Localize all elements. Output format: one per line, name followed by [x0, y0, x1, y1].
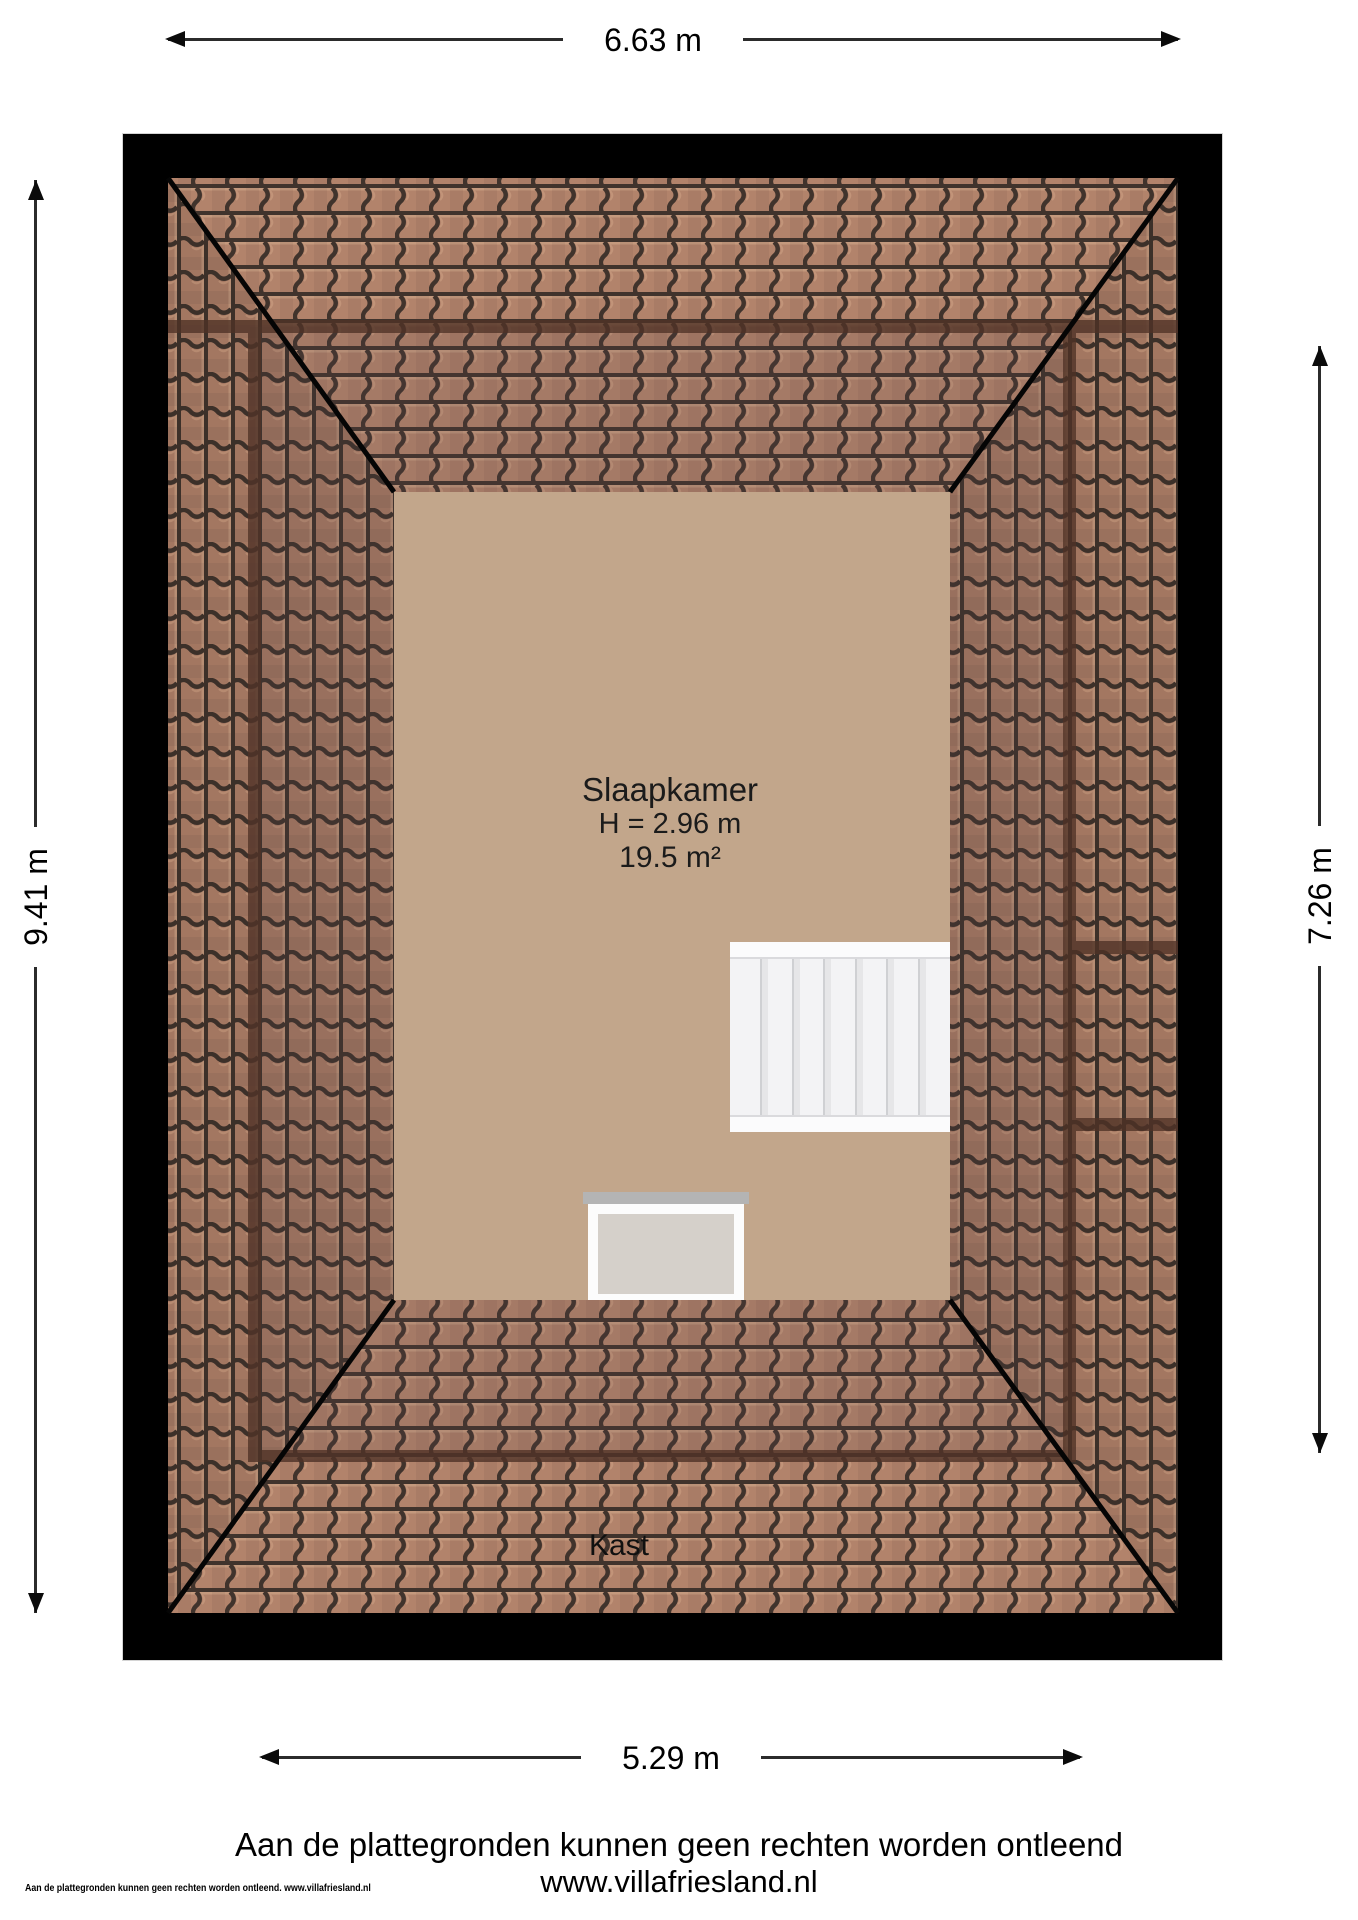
arrowhead-left-icon [259, 1749, 279, 1765]
room-floor-area: 19.5 m² [470, 841, 870, 875]
dimension-right-label: 7.26 m [1300, 826, 1340, 966]
footer-small-print: Aan de plattegronden kunnen geen rechten… [25, 1883, 371, 1894]
arrowhead-down-icon [28, 1593, 44, 1613]
staircase [730, 942, 950, 1132]
closet-label: Kast [519, 1529, 719, 1563]
arrowhead-up-icon [28, 180, 44, 200]
arrowhead-up-icon [1312, 346, 1328, 366]
arrowhead-right-icon [1063, 1749, 1083, 1765]
dimension-bottom-label: 5.29 m [581, 1738, 761, 1778]
arrowhead-left-icon [165, 31, 185, 47]
footer-disclaimer: Aan de plattegronden kunnen geen rechten… [0, 1826, 1358, 1864]
dormer-window [583, 1192, 749, 1300]
footer-website: www.villafriesland.nl [0, 1864, 1358, 1900]
dimension-top-label: 6.63 m [563, 20, 743, 60]
floorplan-drawing [123, 134, 1222, 1660]
room-label: Slaapkamer H = 2.96 m 19.5 m² [470, 772, 870, 875]
arrowhead-down-icon [1312, 1433, 1328, 1453]
room-name: Slaapkamer [470, 772, 870, 808]
room-ceiling-height: H = 2.96 m [470, 808, 870, 841]
dimension-left-label: 9.41 m [16, 827, 56, 967]
arrowhead-right-icon [1161, 31, 1181, 47]
floorplan-page: 6.63 m 9.41 m 7.26 m 5.29 m Slaapkamer H… [0, 0, 1358, 1920]
room-floor [394, 492, 950, 1300]
